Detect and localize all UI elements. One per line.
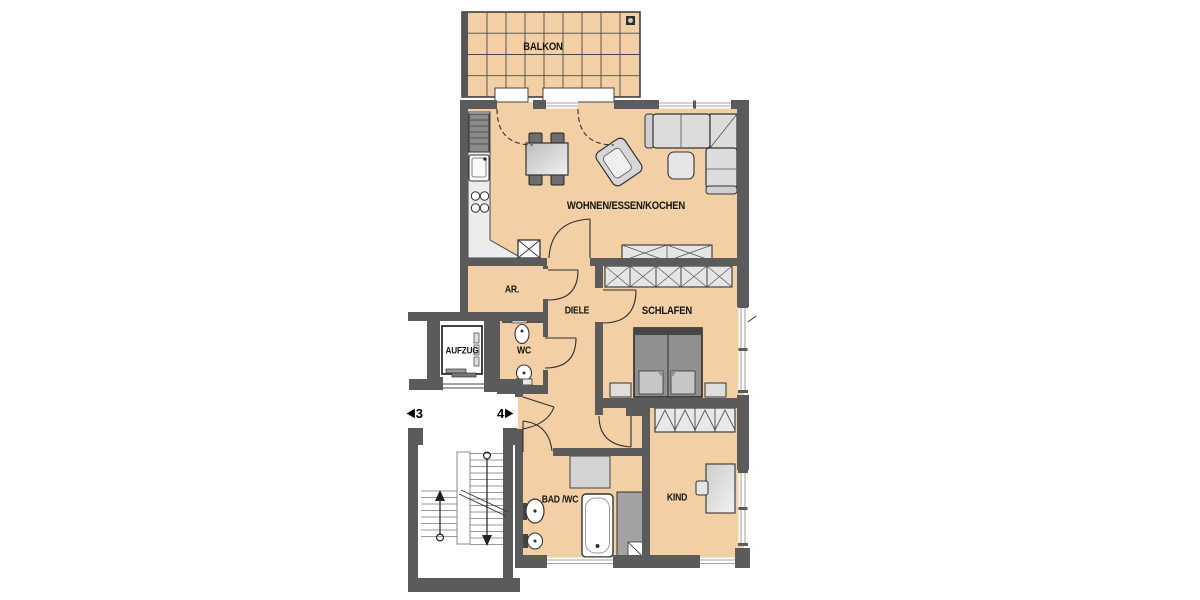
arrow-right-icon: ▶ [505,408,513,420]
wc-sink [515,325,529,344]
nightstand [705,383,726,397]
kid-wardrobe [655,408,735,432]
desk-chair [696,481,708,495]
unit-marker-3: ◀ 3 [407,406,423,421]
unit-marker-4: 4 ▶ [497,406,513,421]
balcony-threshold [495,88,528,102]
dimension-tick [748,316,756,322]
dining-table [526,143,568,175]
window-kid-bottom [700,558,735,566]
bath-cabinet [617,492,643,557]
elevator [440,321,484,388]
kitchen-shaft [518,240,540,258]
nightstand [610,383,631,397]
balcony-threshold [543,88,614,102]
coffee-table [668,152,694,179]
unit-number: 3 [416,406,423,421]
floorplan-canvas: BALKON WOHNEN/ESSEN/KOCHEN AR. DIELE WC … [0,0,1200,600]
shower-tray [570,456,610,488]
staircase [421,452,508,546]
window-kid-right [738,470,748,546]
floorplan-drawing [0,0,1200,600]
window-living-top [659,101,731,109]
balcony-drain-icon [626,16,635,25]
kitchen-sink [469,155,489,181]
arrow-left-icon: ◀ [407,408,415,420]
window-bedroom-right [738,305,748,393]
bath-toilet [523,533,543,549]
balcony [462,12,640,102]
window-top-small [546,101,578,109]
bathtub [582,494,613,557]
window-bath-bottom [547,558,613,566]
double-bed [634,328,702,397]
unit-number: 4 [497,406,504,421]
bedroom-wardrobe [605,266,732,287]
